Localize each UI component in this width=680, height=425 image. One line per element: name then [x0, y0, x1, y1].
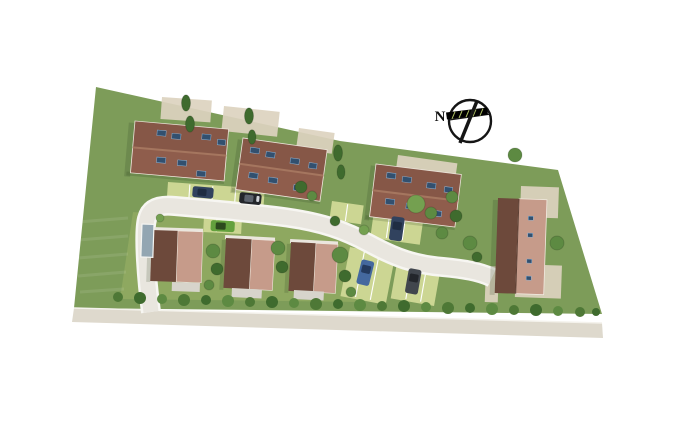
solar-panel: [386, 172, 396, 179]
solar-panel: [385, 198, 395, 205]
cypress-tree: [182, 95, 191, 111]
hedge-bush: [442, 302, 454, 314]
apartment-building-d: [490, 198, 547, 297]
terrace: [294, 290, 324, 301]
solar-panel: [268, 177, 278, 184]
carport: [141, 224, 154, 257]
car-windows: [392, 221, 402, 230]
site-plan-rendering: N: [0, 0, 680, 425]
solar-panel: [156, 157, 165, 163]
parked-car-navy: [192, 186, 214, 199]
house-roof-dark-slope: [223, 238, 252, 289]
tree: [425, 207, 437, 219]
hedge-bush: [245, 297, 255, 307]
terrace: [172, 282, 200, 292]
hedge-bush: [113, 292, 123, 302]
tree: [339, 270, 351, 282]
hedge-bush: [222, 295, 234, 307]
house-3: [284, 239, 338, 296]
hedge-bush: [333, 299, 343, 309]
car-highlight: [256, 196, 260, 202]
tree: [508, 148, 522, 162]
house-2: [219, 235, 275, 293]
roof-window: [528, 216, 533, 220]
hedge-bush: [592, 308, 600, 316]
solar-panel: [250, 147, 260, 154]
compass: N: [435, 100, 491, 143]
tree: [330, 216, 340, 226]
solar-panel: [217, 139, 225, 145]
tree: [359, 225, 369, 235]
hedge-bush: [509, 305, 519, 315]
roof-window: [528, 233, 533, 237]
tree: [463, 236, 477, 250]
solar-panel: [426, 182, 436, 189]
tree: [295, 181, 307, 193]
cypress-tree: [337, 165, 345, 179]
solar-panel: [266, 151, 276, 158]
tree: [156, 214, 164, 222]
solar-panel: [202, 134, 211, 140]
tree: [407, 195, 425, 213]
tree: [204, 280, 214, 290]
hedge-bush: [575, 307, 585, 317]
terrace: [232, 288, 262, 299]
house-roof-light-slope: [176, 231, 203, 283]
hedge-bush: [157, 294, 167, 304]
solar-panel: [290, 158, 300, 165]
hedge-bush: [134, 292, 146, 304]
hedge-bush: [178, 294, 190, 306]
apartment-building-a: [124, 120, 229, 185]
cypress-tree: [248, 130, 256, 144]
tree: [472, 252, 482, 262]
hedge-bush: [377, 301, 387, 311]
hedge-bush: [530, 304, 542, 316]
solar-panel: [172, 133, 181, 139]
tree: [346, 287, 356, 297]
solar-panel: [157, 130, 166, 136]
tree: [436, 227, 448, 239]
solar-panel: [249, 172, 259, 179]
solar-panel: [402, 176, 412, 183]
hedge-bush: [266, 296, 278, 308]
solar-panel: [196, 171, 205, 177]
tree: [211, 263, 223, 275]
car-windows: [197, 188, 207, 196]
hedge-bush: [310, 298, 322, 310]
tree: [450, 210, 462, 222]
tree: [206, 244, 220, 258]
roof-window: [527, 259, 532, 263]
car-windows: [409, 273, 419, 282]
hedge-bush: [421, 302, 431, 312]
cypress-tree: [245, 108, 254, 124]
house-roof-dark-slope: [150, 230, 178, 282]
solar-panel: [308, 162, 317, 169]
cypress-tree: [334, 145, 343, 161]
tree: [446, 191, 458, 203]
hedge-bush: [398, 300, 410, 312]
hedge-bush: [486, 303, 498, 315]
tree: [276, 261, 288, 273]
site-plan-canvas: N: [0, 0, 680, 425]
parked-car-green: [210, 220, 235, 232]
tree: [307, 191, 317, 201]
hedge-bush: [465, 303, 475, 313]
hedge-bush: [289, 298, 299, 308]
tree: [332, 247, 348, 263]
car-windows: [244, 195, 254, 203]
hedge-bush: [201, 295, 211, 305]
solar-panel: [177, 160, 186, 166]
cypress-tree: [186, 116, 195, 132]
hedge-bush: [354, 299, 366, 311]
house-roof-dark-slope: [288, 242, 316, 292]
tree: [271, 241, 285, 255]
parked-car-black: [239, 192, 262, 205]
roof-window: [526, 276, 531, 280]
hedge-bush: [553, 306, 563, 316]
compass-north-label: N: [435, 109, 446, 125]
house-1: [146, 227, 203, 284]
car-windows: [216, 222, 226, 230]
building-roof-dark-slope: [495, 198, 519, 294]
tree: [550, 236, 564, 250]
